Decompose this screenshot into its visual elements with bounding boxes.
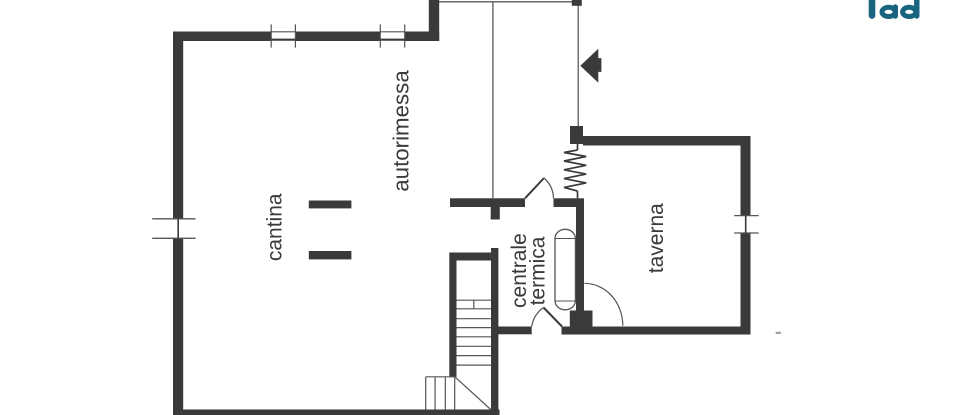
svg-text:autorimessa: autorimessa — [388, 70, 413, 192]
svg-text:taverna: taverna — [645, 203, 668, 273]
svg-text:cantina: cantina — [264, 193, 287, 261]
svg-text:termica: termica — [527, 236, 550, 305]
